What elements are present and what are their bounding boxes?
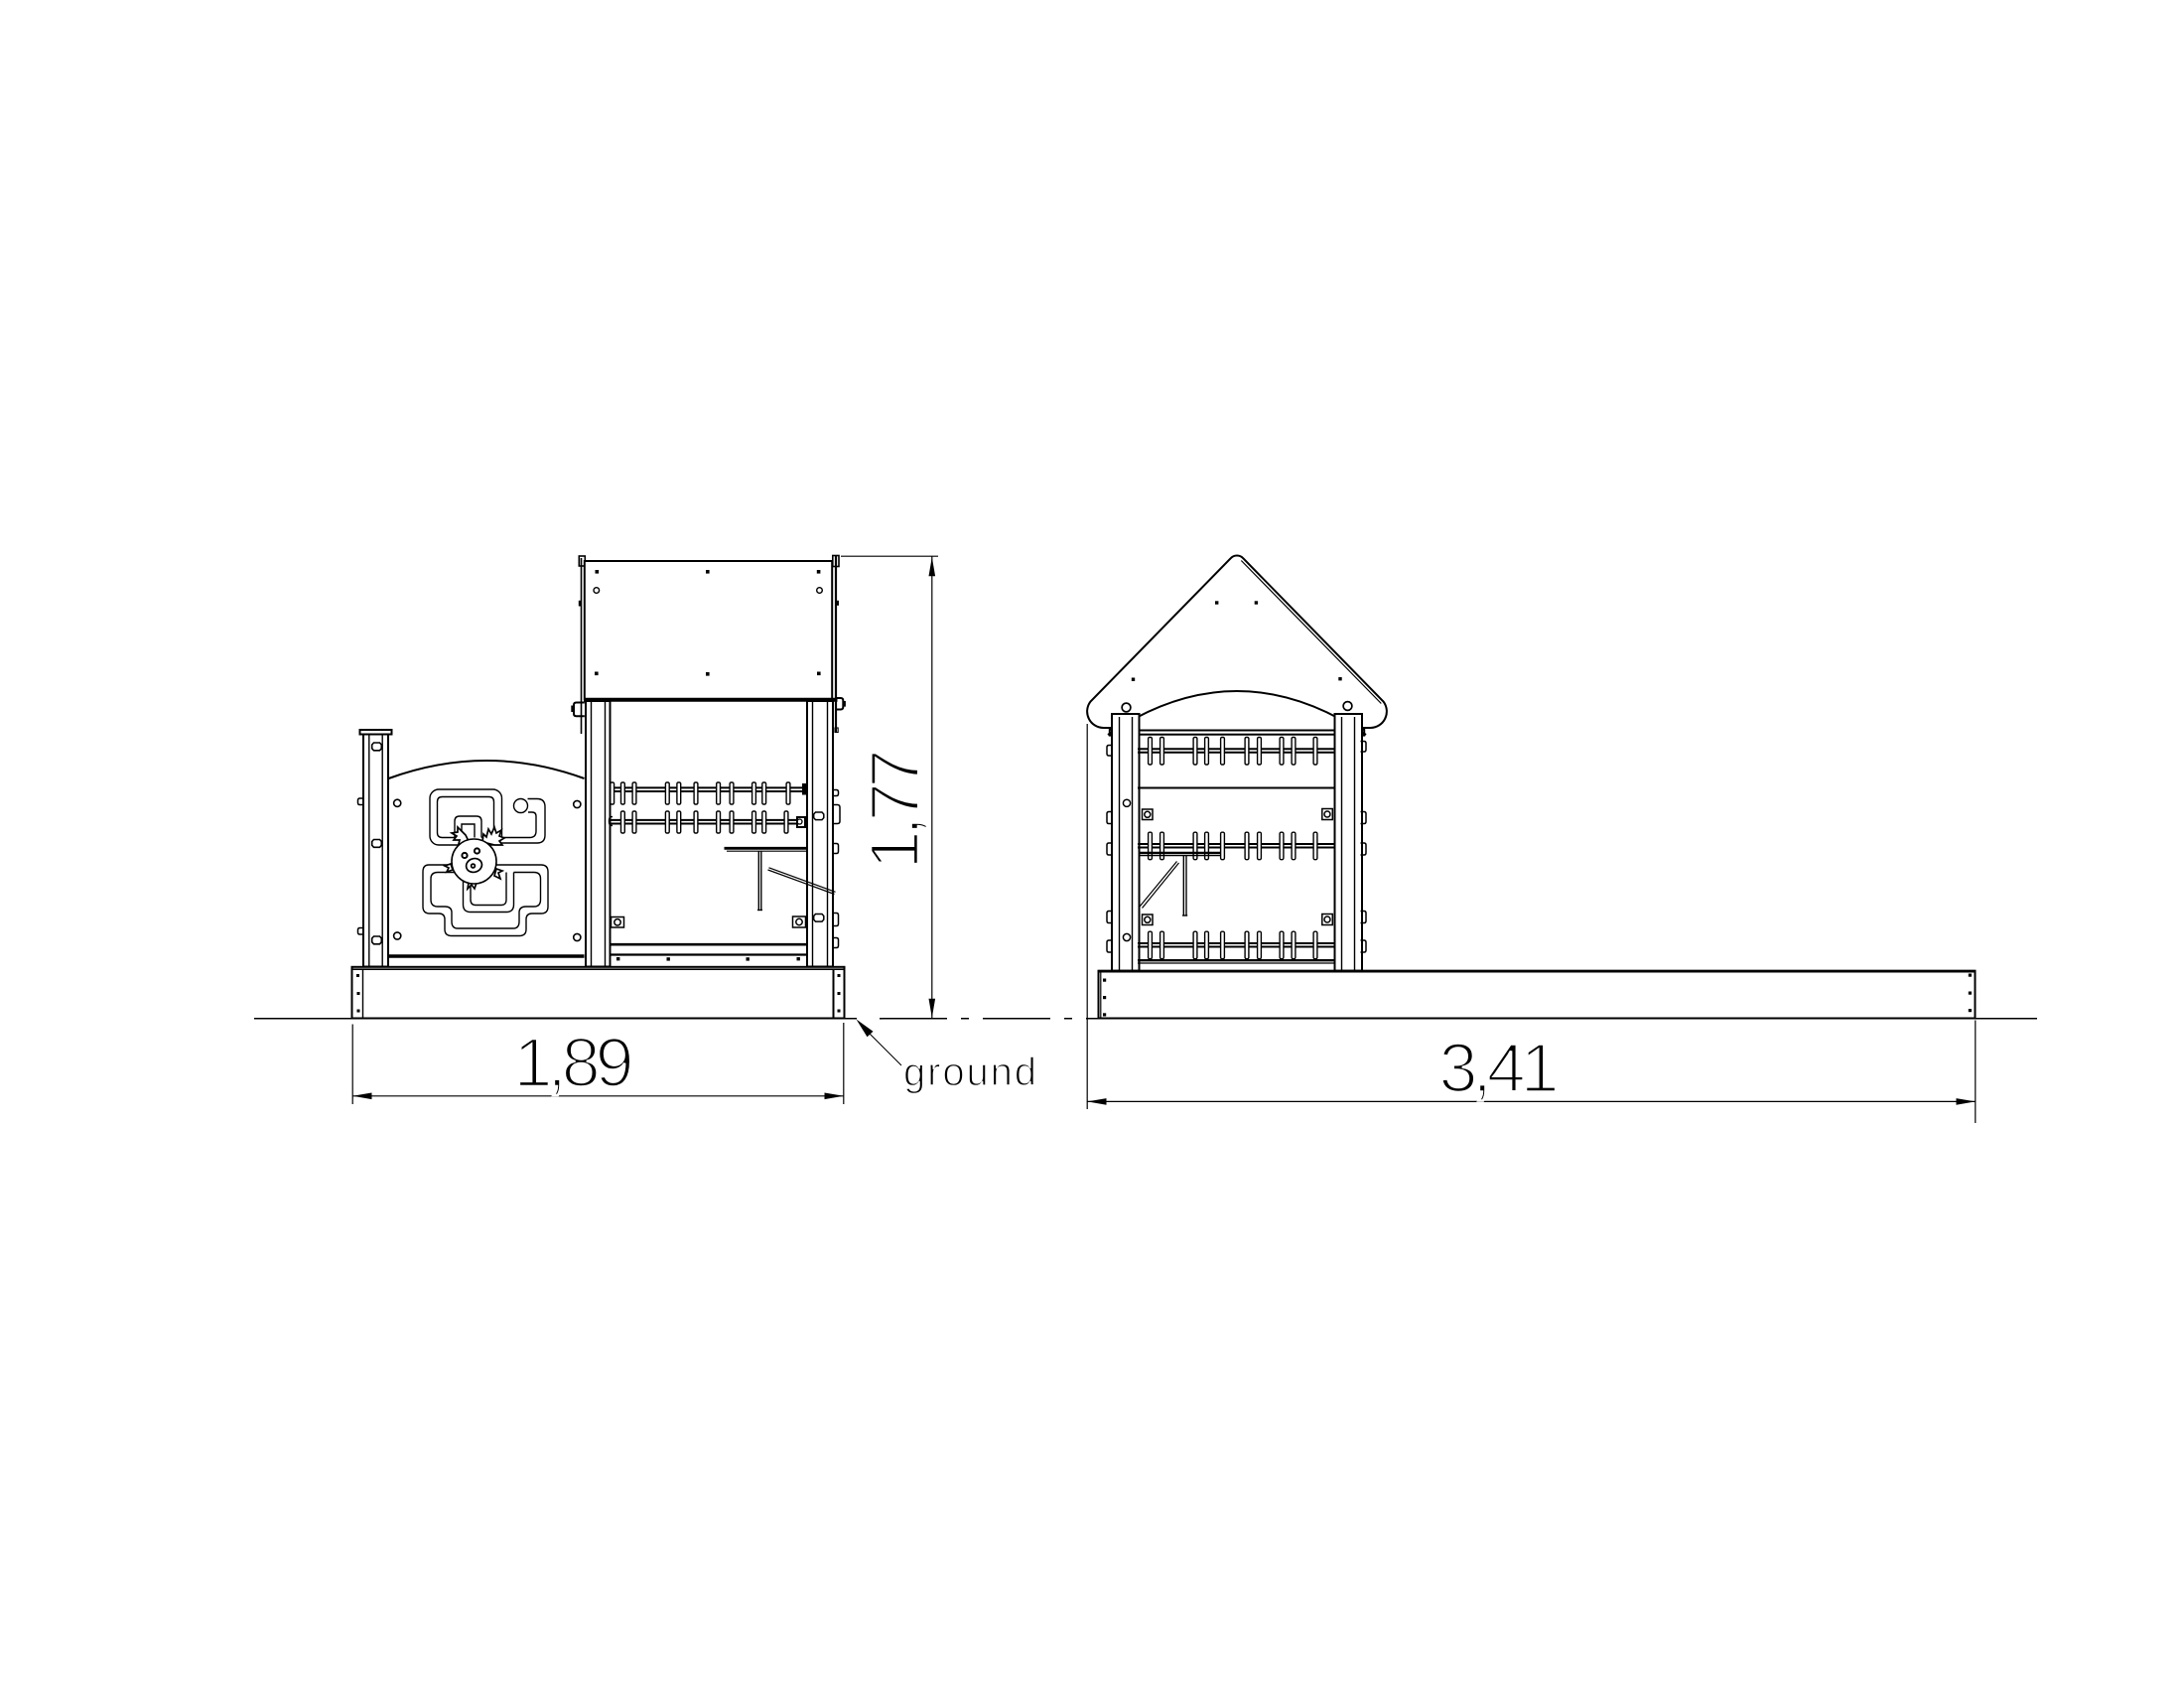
svg-text:3,41: 3,41 (1439, 1030, 1560, 1107)
svg-text:1,89: 1,89 (514, 1024, 634, 1101)
svg-text:ground: ground (903, 1051, 1036, 1094)
svg-text:1,77: 1,77 (856, 750, 933, 870)
